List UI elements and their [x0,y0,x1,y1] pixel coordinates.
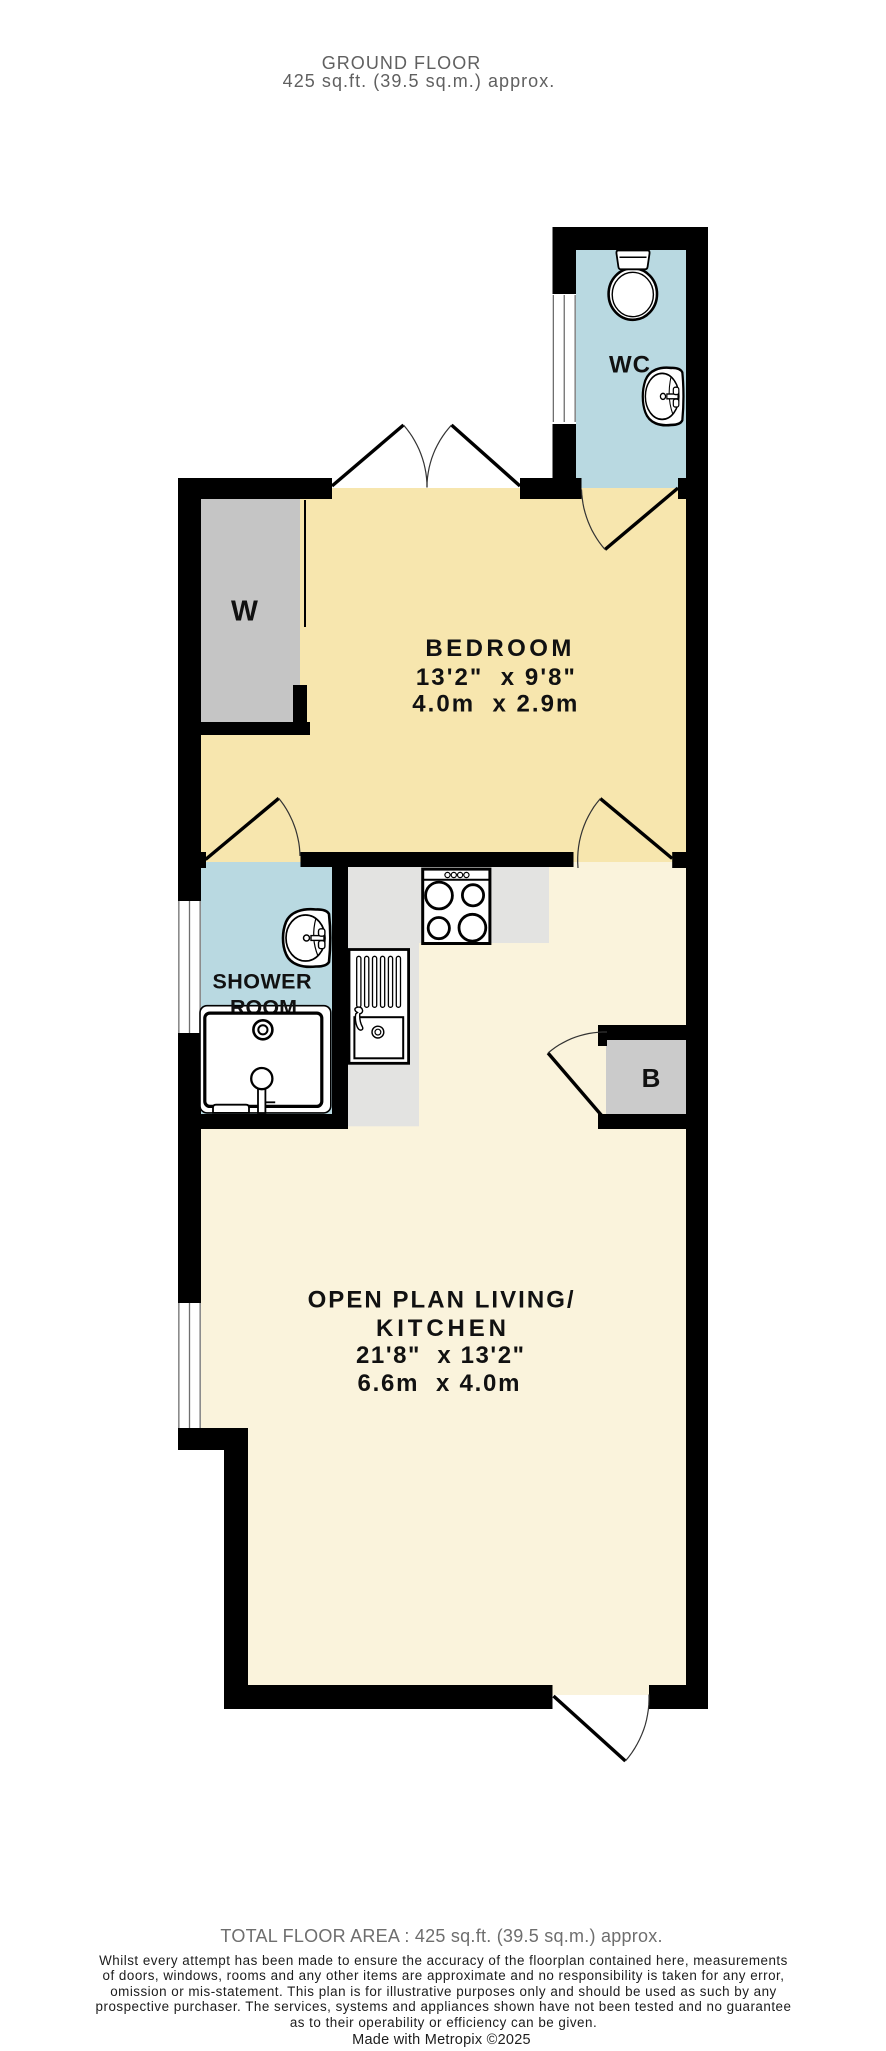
svg-text:OPEN PLAN LIVING/: OPEN PLAN LIVING/ [308,1286,574,1313]
svg-text:21'8" x 13'2": 21'8" x 13'2" [356,1342,524,1369]
svg-text:B: B [642,1063,661,1093]
svg-text:W: W [231,596,258,628]
svg-text:13'2" x 9'8": 13'2" x 9'8" [416,664,575,691]
svg-text:6.6m x 4.0m: 6.6m x 4.0m [358,1370,520,1397]
svg-text:SHOWER: SHOWER [213,970,312,994]
svg-text:WC: WC [609,352,650,379]
svg-text:4.0m x 2.9m: 4.0m x 2.9m [412,691,577,718]
